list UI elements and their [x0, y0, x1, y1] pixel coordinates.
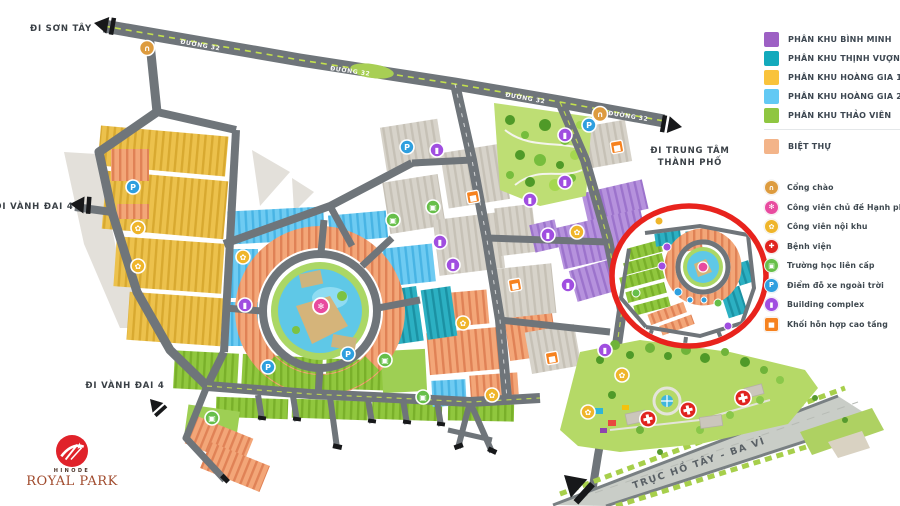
arrow-vanh-dai-4-lower: [145, 394, 168, 417]
gate-icon: ∩: [140, 41, 155, 56]
legend-amenity-cong-vien-chu-de: ✻ Công viên chủ đề Hạnh phúc: [764, 200, 900, 215]
masterplan-screenshot: ∩ ∩ P P P P P ▮ ▮ ▮ ▮ ▮ ▮ ▮ ▮ ▮ ▮ ▣ ▣ ▣ …: [0, 0, 900, 506]
park-icon: ✿: [764, 219, 779, 234]
theme-park-icon: ✻: [764, 200, 779, 215]
arrow-trung-tam: [660, 115, 684, 135]
park-icon: ✿: [570, 225, 584, 239]
label-di-vanh-dai-4-upper: ĐI VÀNH ĐAI 4: [0, 200, 74, 212]
building-complex-icon: ▮: [541, 228, 555, 242]
legend-amenity-truong-hoc: ▣ Trường học liên cấp: [764, 258, 900, 273]
legend-amenity-label: Bệnh viện: [787, 242, 832, 251]
highlight-inset: [607, 206, 766, 352]
svg-text:▮: ▮: [451, 261, 455, 270]
parking-icon: P: [261, 360, 275, 374]
svg-text:✿: ✿: [489, 391, 496, 400]
legend-zone-label: PHÂN KHU THẢO VIÊN: [788, 111, 891, 120]
legend-amenity-label: Cổng chào: [787, 183, 834, 192]
label-di-son-tay: ĐI SƠN TÂY: [30, 22, 92, 34]
parking-icon: P: [764, 278, 779, 293]
building-complex-icon: ▮: [561, 278, 575, 292]
park-icon: ✿: [615, 368, 629, 382]
building-complex-icon: ▮: [430, 143, 444, 157]
svg-text:P: P: [265, 363, 271, 372]
school-icon: ▣: [378, 353, 392, 367]
legend-zone-label: PHÂN KHU HOÀNG GIA 1: [788, 73, 900, 82]
legend-amenities: ∩ Cổng chào ✻ Công viên chủ đề Hạnh phúc…: [764, 180, 900, 332]
legend-amenity-label: Công viên chủ đề Hạnh phúc: [787, 203, 900, 212]
svg-text:✿: ✿: [135, 262, 142, 271]
building-complex-icon: ▮: [433, 235, 447, 249]
building-complex-icon: ▮: [598, 343, 612, 357]
svg-text:P: P: [345, 350, 351, 359]
svg-text:▮: ▮: [566, 281, 570, 290]
school-icon: ▣: [764, 258, 779, 273]
parking-icon: P: [400, 140, 414, 154]
parking-icon: P: [582, 118, 596, 132]
legend-zone-label: PHÂN KHU THỊNH VƯỢNG: [788, 54, 900, 63]
legend-amenity-building-complex: ▮ Building complex: [764, 297, 900, 312]
legend-amenity-benh-vien: ✚ Bệnh viện: [764, 239, 900, 254]
zone-swatch: [764, 89, 779, 104]
park-icon: ✿: [485, 388, 499, 402]
svg-text:P: P: [130, 183, 136, 192]
gate-icon: ∩: [764, 180, 779, 195]
svg-text:▮: ▮: [546, 231, 550, 240]
svg-text:✿: ✿: [135, 224, 142, 233]
school-icon: ▣: [416, 390, 430, 404]
park-icon: ✿: [131, 221, 145, 235]
hospital-icon: ✚: [764, 239, 779, 254]
svg-text:▣: ▣: [419, 393, 427, 402]
legend-zone-label: BIỆT THỰ: [788, 142, 831, 151]
svg-text:▮: ▮: [603, 346, 607, 355]
parking-icon: P: [126, 180, 140, 194]
legend-zone-label: PHÂN KHU HOÀNG GIA 2: [788, 92, 900, 101]
parking-icon: P: [341, 347, 355, 361]
legend-amenity-cong-vien-noi-khu: ✿ Công viên nội khu: [764, 219, 900, 234]
legend-zone-thinh-vuong: PHÂN KHU THỊNH VƯỢNG: [764, 50, 900, 66]
park-icon: ✿: [456, 316, 470, 330]
svg-text:▮: ▮: [563, 178, 567, 187]
svg-text:✿: ✿: [574, 228, 581, 237]
legend-amenity-label: Khối hỗn hợp cao tầng: [787, 320, 888, 329]
legend-amenity-khoi-hon-hop: ▅ Khối hỗn hợp cao tầng: [764, 317, 900, 332]
school-icon: ▣: [426, 200, 440, 214]
building-complex-icon: ▮: [558, 128, 572, 142]
school-icon: ▣: [386, 213, 400, 227]
mixed-use-tower-icon: ▅: [508, 278, 522, 292]
arrow-son-tay: [93, 15, 117, 35]
svg-text:▮: ▮: [438, 238, 442, 247]
legend-zone-biet-thu: BIỆT THỰ: [764, 138, 900, 154]
svg-text:▮: ▮: [435, 146, 439, 155]
mixed-use-tower-icon: ▅: [764, 317, 779, 332]
legend-divider: [764, 129, 900, 130]
building-complex-icon: ▮: [446, 258, 460, 272]
legend-amenity-label: Building complex: [787, 300, 864, 309]
project-logo: HINODE ROYAL PARK: [22, 435, 122, 489]
svg-text:▮: ▮: [528, 196, 532, 205]
legend-amenity-label: Trường học liên cấp: [787, 261, 875, 270]
theme-park-icon: ✻: [313, 298, 329, 314]
svg-text:▣: ▣: [389, 216, 397, 225]
zone-swatch: [764, 51, 779, 66]
park-icon: ✿: [581, 405, 595, 419]
svg-text:✿: ✿: [240, 253, 247, 262]
svg-text:▣: ▣: [208, 414, 216, 423]
svg-text:▣: ▣: [429, 203, 437, 212]
svg-text:∩: ∩: [144, 44, 151, 53]
zone-swatch: [764, 70, 779, 85]
svg-text:✿: ✿: [585, 408, 592, 417]
legend-zone-binh-minh: PHÂN KHU BÌNH MINH: [764, 31, 900, 47]
legend-zone-label: PHÂN KHU BÌNH MINH: [788, 35, 892, 44]
svg-text:✿: ✿: [619, 371, 626, 380]
label-di-trung-tam-1: ĐI TRUNG TÂM: [650, 144, 729, 156]
park-icon: ✿: [236, 250, 250, 264]
school-icon: ▣: [205, 411, 219, 425]
svg-text:✻: ✻: [318, 302, 325, 311]
building-complex-icon: ▮: [764, 297, 779, 312]
legend-zone-thao-vien: PHÂN KHU THẢO VIÊN: [764, 107, 900, 123]
mixed-use-tower-icon: ▅: [610, 140, 624, 154]
mixed-use-tower-icon: ▅: [545, 351, 559, 365]
svg-text:▣: ▣: [381, 356, 389, 365]
map-legend: PHÂN KHU BÌNH MINH PHÂN KHU THỊNH VƯỢNG …: [764, 31, 900, 336]
gate-icon: ∩: [593, 107, 608, 122]
hinode-logo-mark: [56, 435, 88, 467]
building-complex-icon: ▮: [238, 298, 252, 312]
svg-text:▮: ▮: [243, 301, 247, 310]
svg-text:▮: ▮: [563, 131, 567, 140]
zone-swatch: [764, 108, 779, 123]
legend-zone-hoang-gia-2: PHÂN KHU HOÀNG GIA 2: [764, 88, 900, 104]
building-complex-icon: ▮: [523, 193, 537, 207]
label-di-vanh-dai-4-lower: ĐI VÀNH ĐAI 4: [85, 379, 164, 391]
legend-amenity-label: Công viên nội khu: [787, 222, 868, 231]
svg-text:P: P: [586, 121, 592, 130]
zone-swatch: [764, 32, 779, 47]
svg-text:✿: ✿: [460, 319, 467, 328]
svg-text:∩: ∩: [597, 110, 604, 119]
zone-swatch: [764, 139, 779, 154]
svg-text:P: P: [404, 143, 410, 152]
legend-zones: PHÂN KHU BÌNH MINH PHÂN KHU THỊNH VƯỢNG …: [764, 31, 900, 154]
legend-zone-hoang-gia-1: PHÂN KHU HOÀNG GIA 1: [764, 69, 900, 85]
label-di-trung-tam-2: THÀNH PHỐ: [658, 155, 722, 168]
legend-amenity-cong-chao: ∩ Cổng chào: [764, 180, 900, 195]
building-complex-icon: ▮: [558, 175, 572, 189]
legend-amenity-label: Điểm đỗ xe ngoài trời: [787, 281, 884, 290]
legend-amenity-diem-do-xe: P Điểm đỗ xe ngoài trời: [764, 278, 900, 293]
logo-name-text: ROYAL PARK: [22, 474, 122, 489]
park-icon: ✿: [131, 259, 145, 273]
mixed-use-tower-icon: ▅: [466, 190, 480, 204]
